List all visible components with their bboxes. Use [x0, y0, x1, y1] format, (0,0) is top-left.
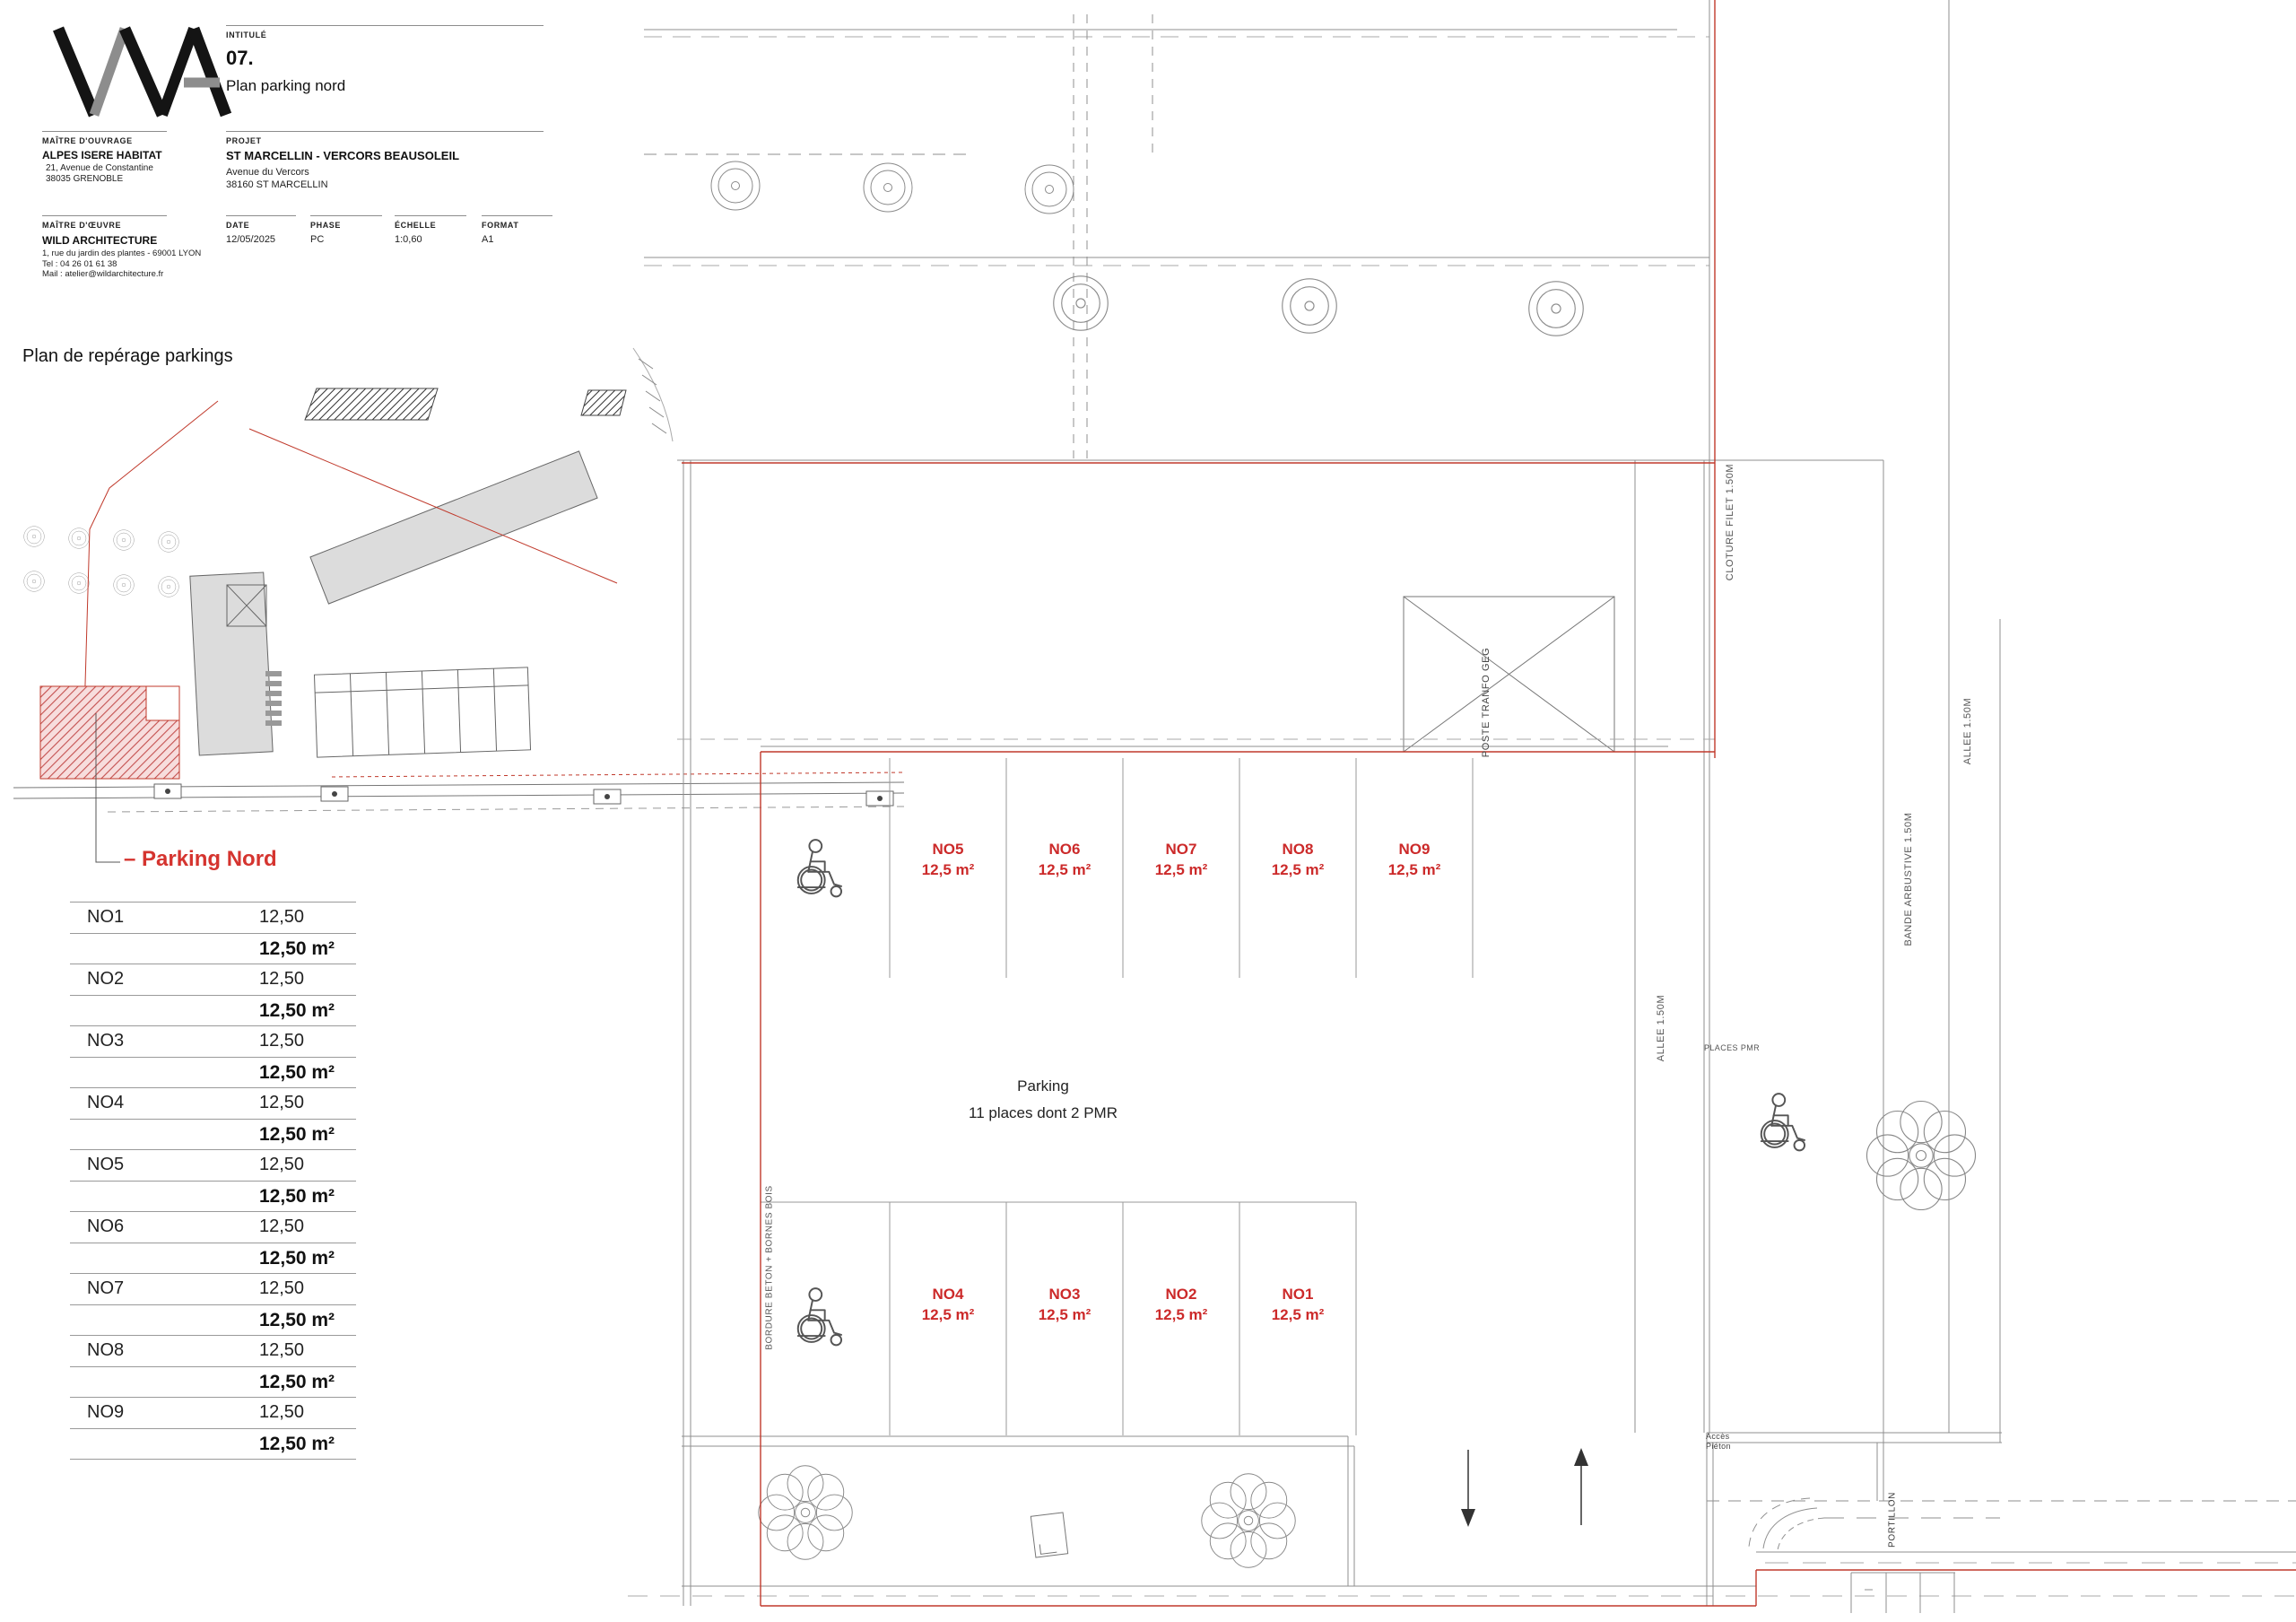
bande-arbustive-label: BANDE ARBUSTIVE 1.50M: [1903, 813, 1914, 946]
stall-value: 12,50: [259, 903, 304, 933]
stall-id: NO2: [87, 964, 124, 995]
stall-id: NO7: [1155, 839, 1208, 859]
format-value: A1: [482, 234, 493, 245]
stall-value: 12,50: [259, 1212, 304, 1243]
date-value: 12/05/2025: [226, 234, 275, 245]
stall-label-no2: NO2 12,5 m²: [1155, 1284, 1208, 1325]
sheet-title: Plan parking nord: [226, 77, 345, 95]
allee-mid-label: ALLEE 1.50M: [1656, 995, 1666, 1061]
cloture-label: CLOTURE FILET 1.50M: [1725, 464, 1735, 580]
scale-label: ÉCHELLE: [395, 221, 436, 230]
sheet-number: 07.: [226, 47, 254, 70]
stall-id: NO9: [87, 1398, 124, 1428]
table-row-area: 12,50 m²: [70, 1057, 356, 1088]
table-row: NO812,50: [70, 1335, 356, 1366]
stall-id: NO4: [922, 1284, 975, 1304]
stall-area: 12,50 m²: [259, 996, 335, 1026]
stall-area: 12,5 m²: [1272, 859, 1325, 880]
table-row: NO412,50: [70, 1087, 356, 1119]
table-row-area: 12,50 m²: [70, 933, 356, 964]
stall-label-no1: NO1 12,5 m²: [1272, 1284, 1325, 1325]
wheelchair-icon: [798, 1288, 841, 1345]
stall-area: 12,5 m²: [1039, 1304, 1091, 1325]
stall-area: 12,50 m²: [259, 1367, 335, 1398]
stall-id: NO3: [1039, 1284, 1091, 1304]
drawing-sheet: INTITULÉ 07. Plan parking nord MAÎTRE D'…: [0, 0, 2296, 1622]
stall-area: 12,5 m²: [1155, 859, 1208, 880]
project-address-2: 38160 ST MARCELLIN: [226, 179, 328, 190]
table-row: NO712,50: [70, 1273, 356, 1304]
places-pmr-label: PLACES PMR: [1704, 1043, 1760, 1053]
table-row: NO912,50: [70, 1397, 356, 1428]
stall-area: 12,50 m²: [259, 934, 335, 964]
keyplan-parking-nord-hatch: [40, 686, 179, 779]
stall-value: 12,50: [259, 964, 304, 995]
stall-area: 12,50 m²: [259, 1182, 335, 1212]
scale-value: 1:0,60: [395, 234, 422, 245]
keyplan-heading: Plan de repérage parkings: [22, 346, 233, 367]
poste-transfo-label: POSTE TRANFO GEG: [1481, 648, 1492, 757]
mainplan-group: [628, 0, 2296, 1613]
table-row: NO512,50: [70, 1149, 356, 1181]
stall-id: NO7: [87, 1274, 124, 1304]
stall-label-no9: NO9 12,5 m²: [1388, 839, 1441, 880]
stall-label-no6: NO6 12,5 m²: [1039, 839, 1091, 880]
intitule-label: INTITULÉ: [226, 31, 266, 39]
stall-id: NO2: [1155, 1284, 1208, 1304]
stall-area: 12,5 m²: [922, 1304, 975, 1325]
stall-label-no4: NO4 12,5 m²: [922, 1284, 975, 1325]
stall-id: NO9: [1388, 839, 1441, 859]
stall-label-no5: NO5 12,5 m²: [922, 839, 975, 880]
acces-line1: Accès: [1706, 1432, 1731, 1442]
stall-area: 12,50 m²: [259, 1305, 335, 1336]
table-row-area: 12,50 m²: [70, 1366, 356, 1398]
phase-label: PHASE: [310, 221, 341, 230]
stall-id: NO1: [1272, 1284, 1325, 1304]
table-row-area: 12,50 m²: [70, 1304, 356, 1336]
stall-area: 12,5 m²: [1388, 859, 1441, 880]
client-address-1: 21, Avenue de Constantine: [46, 163, 153, 174]
allee-right-label: ALLEE 1.50M: [1962, 698, 1973, 764]
client-address-2: 38035 GRENOBLE: [46, 174, 123, 185]
traffic-arrows: [1461, 1448, 1588, 1527]
project-address-1: Avenue du Vercors: [226, 167, 309, 178]
architect-name: WILD ARCHITECTURE: [42, 234, 157, 247]
stall-id: NO5: [87, 1150, 124, 1181]
stall-area: 12,50 m²: [259, 1120, 335, 1150]
titleblock-rule: [42, 215, 167, 216]
stall-area: 12,5 m²: [1039, 859, 1091, 880]
wa-logo: [49, 25, 233, 118]
stall-id: NO4: [87, 1088, 124, 1119]
stall-value: 12,50: [259, 1398, 304, 1428]
small-stalls-bottom-right: [1851, 1573, 1955, 1613]
stall-area: 12,50 m²: [259, 1243, 335, 1274]
table-row-area: 12,50 m²: [70, 1119, 356, 1150]
keyplan-group: [13, 388, 904, 862]
stall-area: 12,5 m²: [922, 859, 975, 880]
site-boundary-red: [682, 0, 2296, 1606]
stall-id: NO6: [87, 1212, 124, 1243]
wheelchair-icon: [798, 840, 841, 896]
titleblock-rule: [226, 215, 296, 216]
table-row: NO212,50: [70, 964, 356, 995]
table-row: NO312,50: [70, 1025, 356, 1057]
stall-area: 12,5 m²: [1155, 1304, 1208, 1325]
table-row: NO612,50: [70, 1211, 356, 1243]
parking-area-table: NO112,50 12,50 m² NO212,50 12,50 m² NO31…: [70, 902, 356, 1460]
architect-label: MAÎTRE D'ŒUVRE: [42, 221, 121, 230]
titleblock-rule: [42, 131, 167, 132]
titleblock-rule: [482, 215, 552, 216]
parking-nord-callout: – Parking Nord: [124, 847, 277, 872]
architect-address: 1, rue du jardin des plantes - 69001 LYO…: [42, 249, 201, 259]
stall-area: 12,5 m²: [1272, 1304, 1325, 1325]
stall-id: NO8: [1272, 839, 1325, 859]
stall-id: NO5: [922, 839, 975, 859]
stall-id: NO3: [87, 1026, 124, 1057]
acces-line2: Piéton: [1706, 1442, 1731, 1452]
client-label: MAÎTRE D'OUVRAGE: [42, 136, 133, 145]
architect-email: Mail : atelier@wildarchitecture.fr: [42, 269, 163, 280]
table-row-area: 12,50 m²: [70, 1243, 356, 1274]
stall-value: 12,50: [259, 1274, 304, 1304]
project-label: PROJET: [226, 136, 262, 145]
phase-value: PC: [310, 234, 324, 245]
stall-label-no7: NO7 12,5 m²: [1155, 839, 1208, 880]
wheelchair-icon: [1761, 1094, 1805, 1150]
stall-value: 12,50: [259, 1088, 304, 1119]
stall-value: 12,50: [259, 1336, 304, 1366]
stall-value: 12,50: [259, 1150, 304, 1181]
portillon-label: PORTILLON: [1888, 1492, 1898, 1548]
acces-pieton-label: Accès Piéton: [1706, 1432, 1731, 1452]
stall-id: NO6: [1039, 839, 1091, 859]
stall-area: 12,50 m²: [259, 1429, 335, 1460]
parking-note-line2: 11 places dont 2 PMR: [969, 1100, 1118, 1127]
stall-area: 12,50 m²: [259, 1058, 335, 1088]
parking-note-line1: Parking: [969, 1073, 1118, 1100]
table-row: NO112,50: [70, 902, 356, 933]
titleblock-rule: [226, 131, 544, 132]
table-row-area: 12,50 m²: [70, 995, 356, 1026]
parking-count-note: Parking 11 places dont 2 PMR: [969, 1073, 1118, 1127]
stall-value: 12,50: [259, 1026, 304, 1057]
date-label: DATE: [226, 221, 249, 230]
ground-marker: [1031, 1513, 1067, 1557]
bordure-beton-label: BORDURE BETON + BORNES BOIS: [765, 1185, 775, 1350]
stall-id: NO1: [87, 903, 124, 933]
project-name: ST MARCELLIN - VERCORS BEAUSOLEIL: [226, 149, 459, 162]
format-label: FORMAT: [482, 221, 518, 230]
stall-label-no8: NO8 12,5 m²: [1272, 839, 1325, 880]
titleblock-rule: [310, 215, 382, 216]
stall-id: NO8: [87, 1336, 124, 1366]
titleblock-rule: [226, 25, 544, 26]
table-row-area: 12,50 m²: [70, 1428, 356, 1460]
stall-label-no3: NO3 12,5 m²: [1039, 1284, 1091, 1325]
client-name: ALPES ISERE HABITAT: [42, 149, 162, 161]
table-row-area: 12,50 m²: [70, 1181, 356, 1212]
titleblock-rule: [395, 215, 466, 216]
